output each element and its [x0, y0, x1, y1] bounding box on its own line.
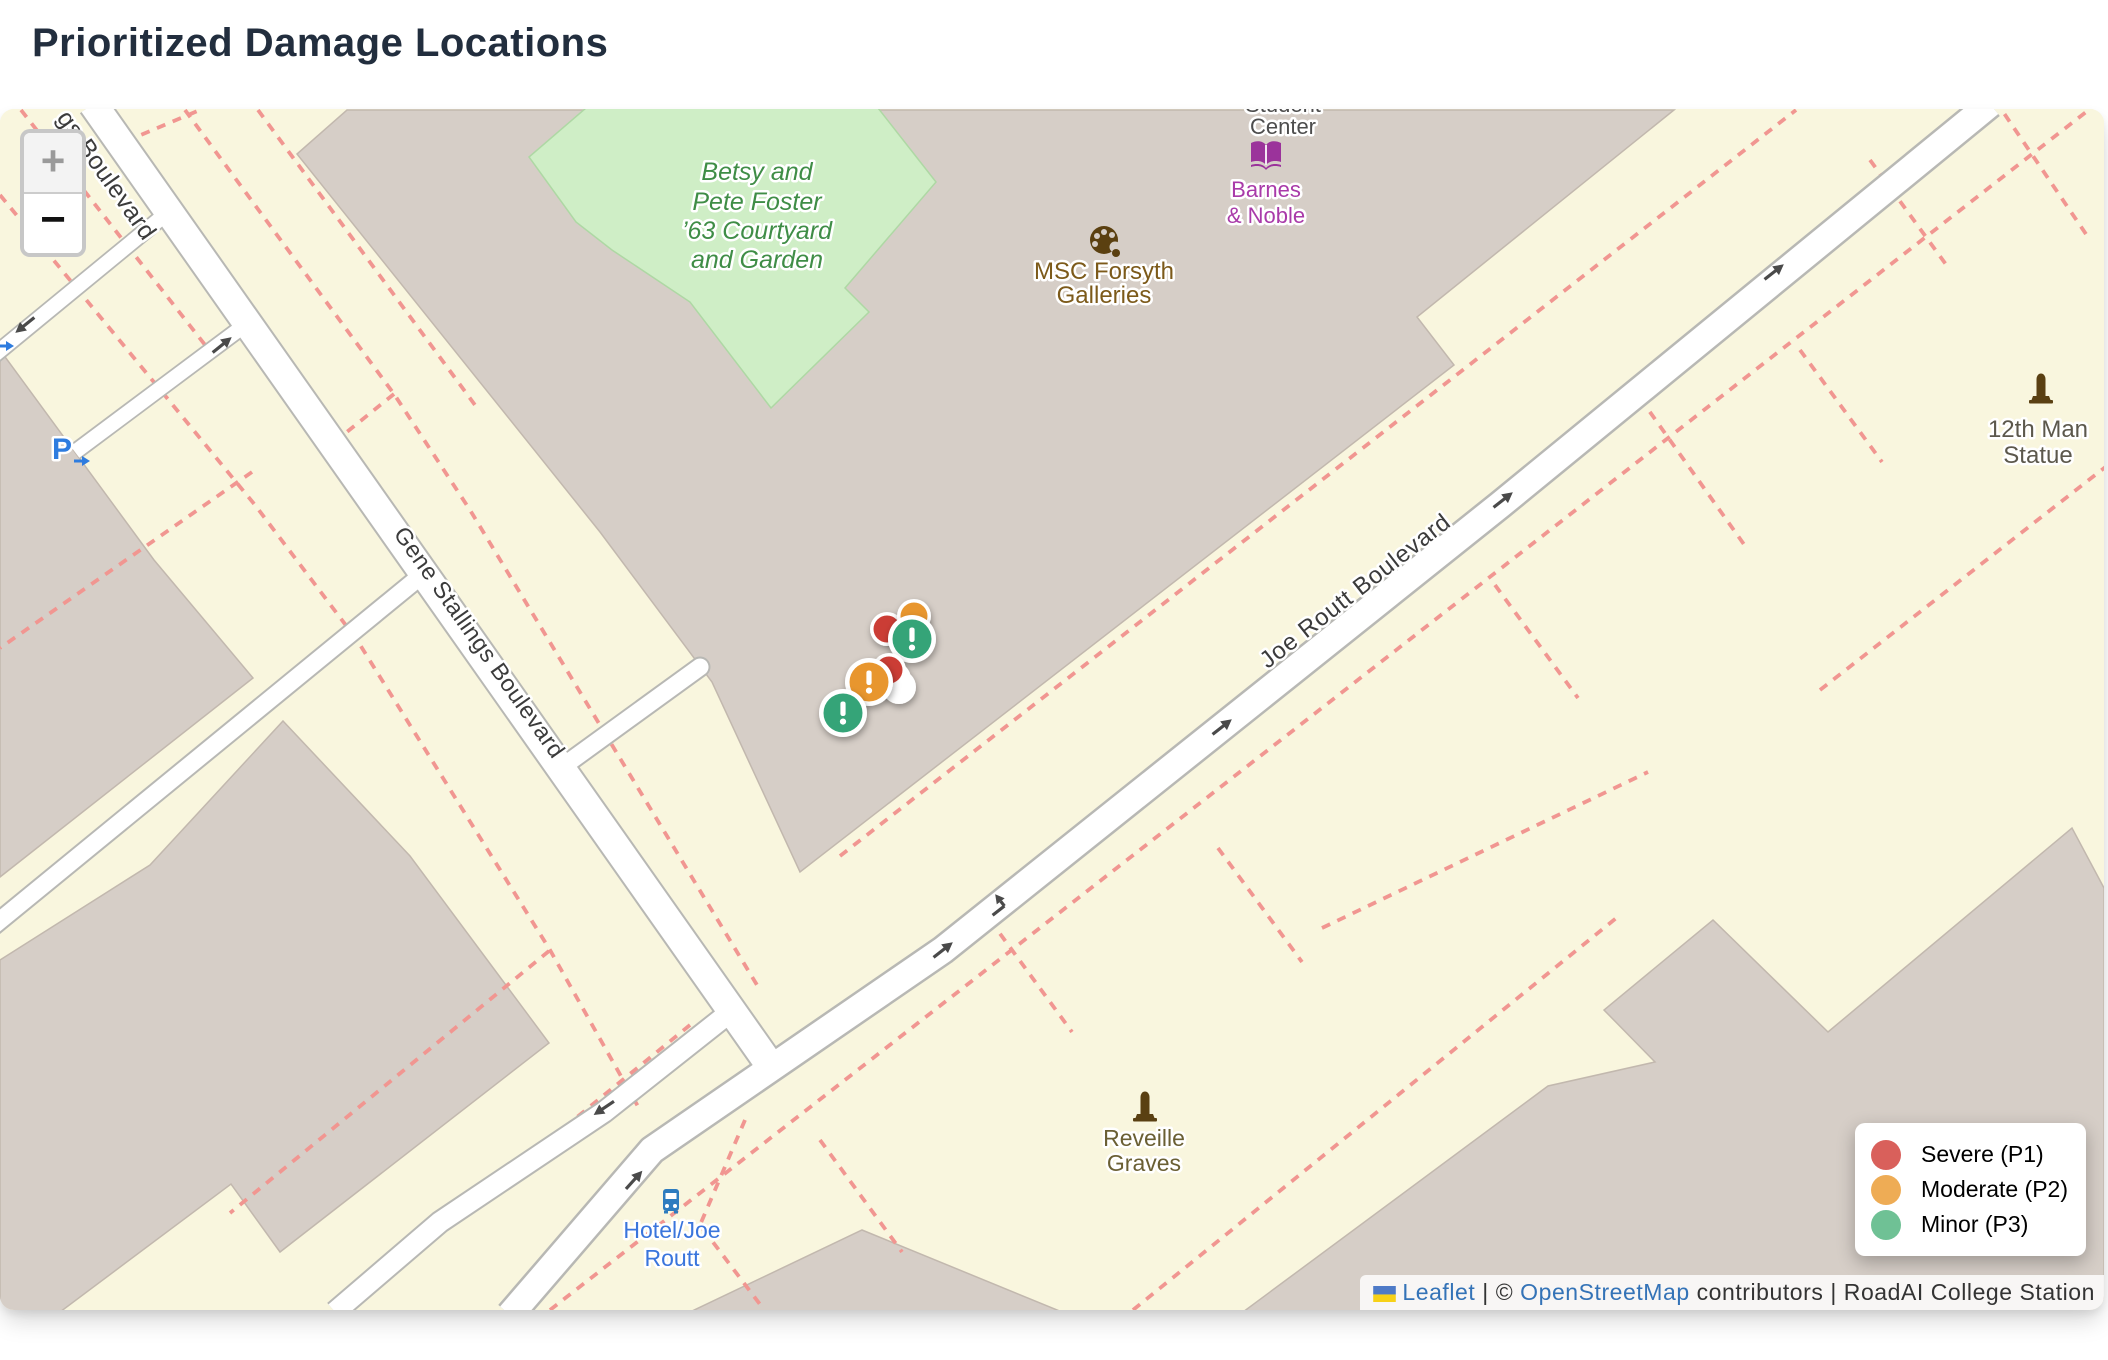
svg-text:Galleries: Galleries	[1057, 282, 1152, 309]
svg-text:Statue: Statue	[2003, 442, 2072, 469]
svg-text:12th Man: 12th Man	[1988, 416, 2088, 443]
svg-text:Center: Center	[1250, 114, 1316, 139]
svg-text:Graves: Graves	[1107, 1150, 1181, 1176]
svg-text:’63 Courtyard: ’63 Courtyard	[682, 217, 833, 245]
svg-text:MSC Forsyth: MSC Forsyth	[1034, 258, 1174, 285]
svg-text:P: P	[52, 433, 72, 466]
svg-text:Betsy and: Betsy and	[701, 158, 813, 186]
svg-text:& Noble: & Noble	[1227, 203, 1305, 228]
svg-text:Barnes: Barnes	[1231, 177, 1301, 202]
svg-text:and Garden: and Garden	[691, 246, 823, 274]
svg-text:Routt: Routt	[645, 1245, 701, 1271]
svg-text:Reveille: Reveille	[1103, 1125, 1185, 1151]
svg-text:Hotel/Joe: Hotel/Joe	[623, 1217, 720, 1243]
svg-text:Pete Foster: Pete Foster	[692, 188, 823, 216]
